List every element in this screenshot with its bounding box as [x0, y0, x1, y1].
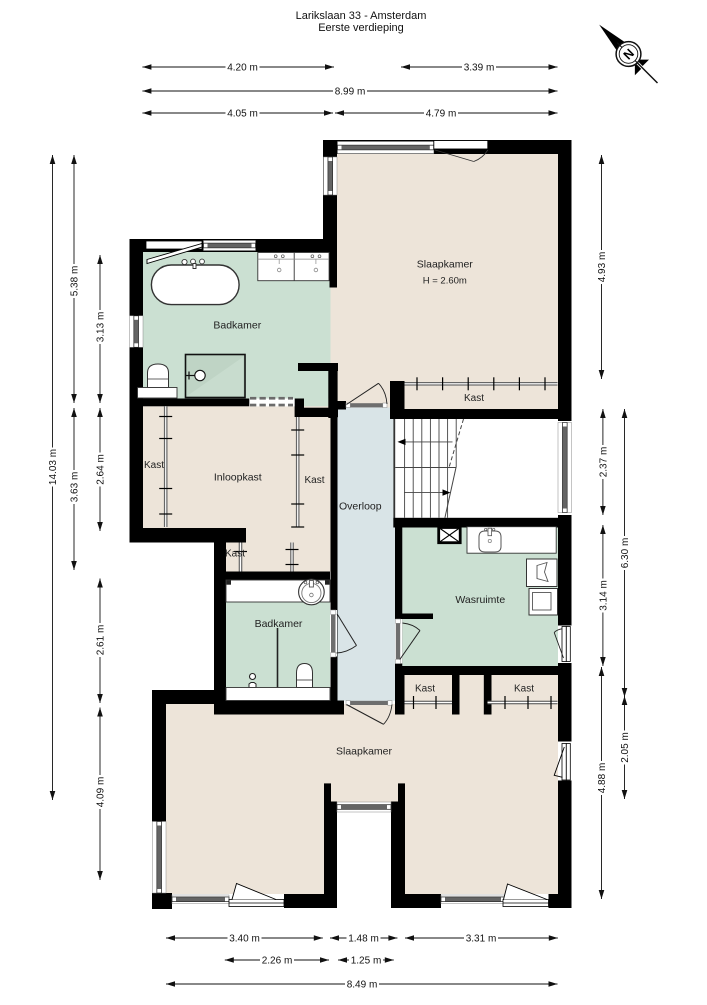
svg-text:4.88 m: 4.88 m [597, 763, 608, 794]
svg-text:3.14 m: 3.14 m [598, 580, 609, 611]
svg-text:Slaapkamer: Slaapkamer [336, 746, 393, 758]
svg-text:6.30 m: 6.30 m [620, 538, 631, 569]
svg-text:H = 2.60m: H = 2.60m [423, 276, 467, 287]
svg-text:Wasruimte: Wasruimte [455, 594, 505, 606]
svg-text:3.31 m: 3.31 m [466, 933, 497, 944]
svg-text:5.38 m: 5.38 m [69, 266, 80, 297]
svg-text:Kast: Kast [415, 684, 435, 695]
svg-text:2.61 m: 2.61 m [95, 625, 106, 656]
svg-text:3.63 m: 3.63 m [69, 472, 80, 503]
svg-text:Slaapkamer: Slaapkamer [417, 259, 474, 271]
svg-text:Inloopkast: Inloopkast [214, 472, 262, 484]
svg-text:4.20 m: 4.20 m [227, 62, 258, 73]
svg-text:2.05 m: 2.05 m [620, 732, 631, 763]
svg-text:2.26 m: 2.26 m [262, 955, 293, 966]
svg-text:Kast: Kast [304, 475, 324, 486]
svg-text:1.25 m: 1.25 m [351, 955, 382, 966]
svg-text:4.05 m: 4.05 m [227, 108, 258, 119]
svg-text:3.13 m: 3.13 m [95, 312, 106, 343]
svg-text:4.09 m: 4.09 m [95, 777, 106, 808]
svg-text:Eerste verdieping: Eerste verdieping [318, 22, 404, 34]
svg-text:3.39 m: 3.39 m [464, 62, 495, 73]
svg-text:Kast: Kast [225, 549, 245, 560]
svg-text:8.99 m: 8.99 m [335, 86, 366, 97]
svg-text:Overloop: Overloop [339, 501, 382, 513]
svg-text:2.37 m: 2.37 m [598, 447, 609, 478]
svg-text:Kast: Kast [144, 460, 164, 471]
svg-text:4.93 m: 4.93 m [597, 252, 608, 283]
svg-text:Badkamer: Badkamer [213, 320, 261, 332]
svg-text:14.03 m: 14.03 m [48, 449, 59, 485]
svg-text:8.49 m: 8.49 m [347, 979, 378, 990]
svg-text:Larikslaan 33 - Amsterdam: Larikslaan 33 - Amsterdam [296, 10, 427, 22]
svg-text:3.40 m: 3.40 m [229, 933, 260, 944]
svg-text:1.48 m: 1.48 m [348, 933, 379, 944]
svg-text:2.64 m: 2.64 m [95, 454, 106, 485]
svg-text:Badkamer: Badkamer [255, 618, 303, 630]
svg-text:Kast: Kast [464, 393, 484, 404]
svg-text:Kast: Kast [514, 684, 534, 695]
svg-text:4.79 m: 4.79 m [426, 108, 457, 119]
